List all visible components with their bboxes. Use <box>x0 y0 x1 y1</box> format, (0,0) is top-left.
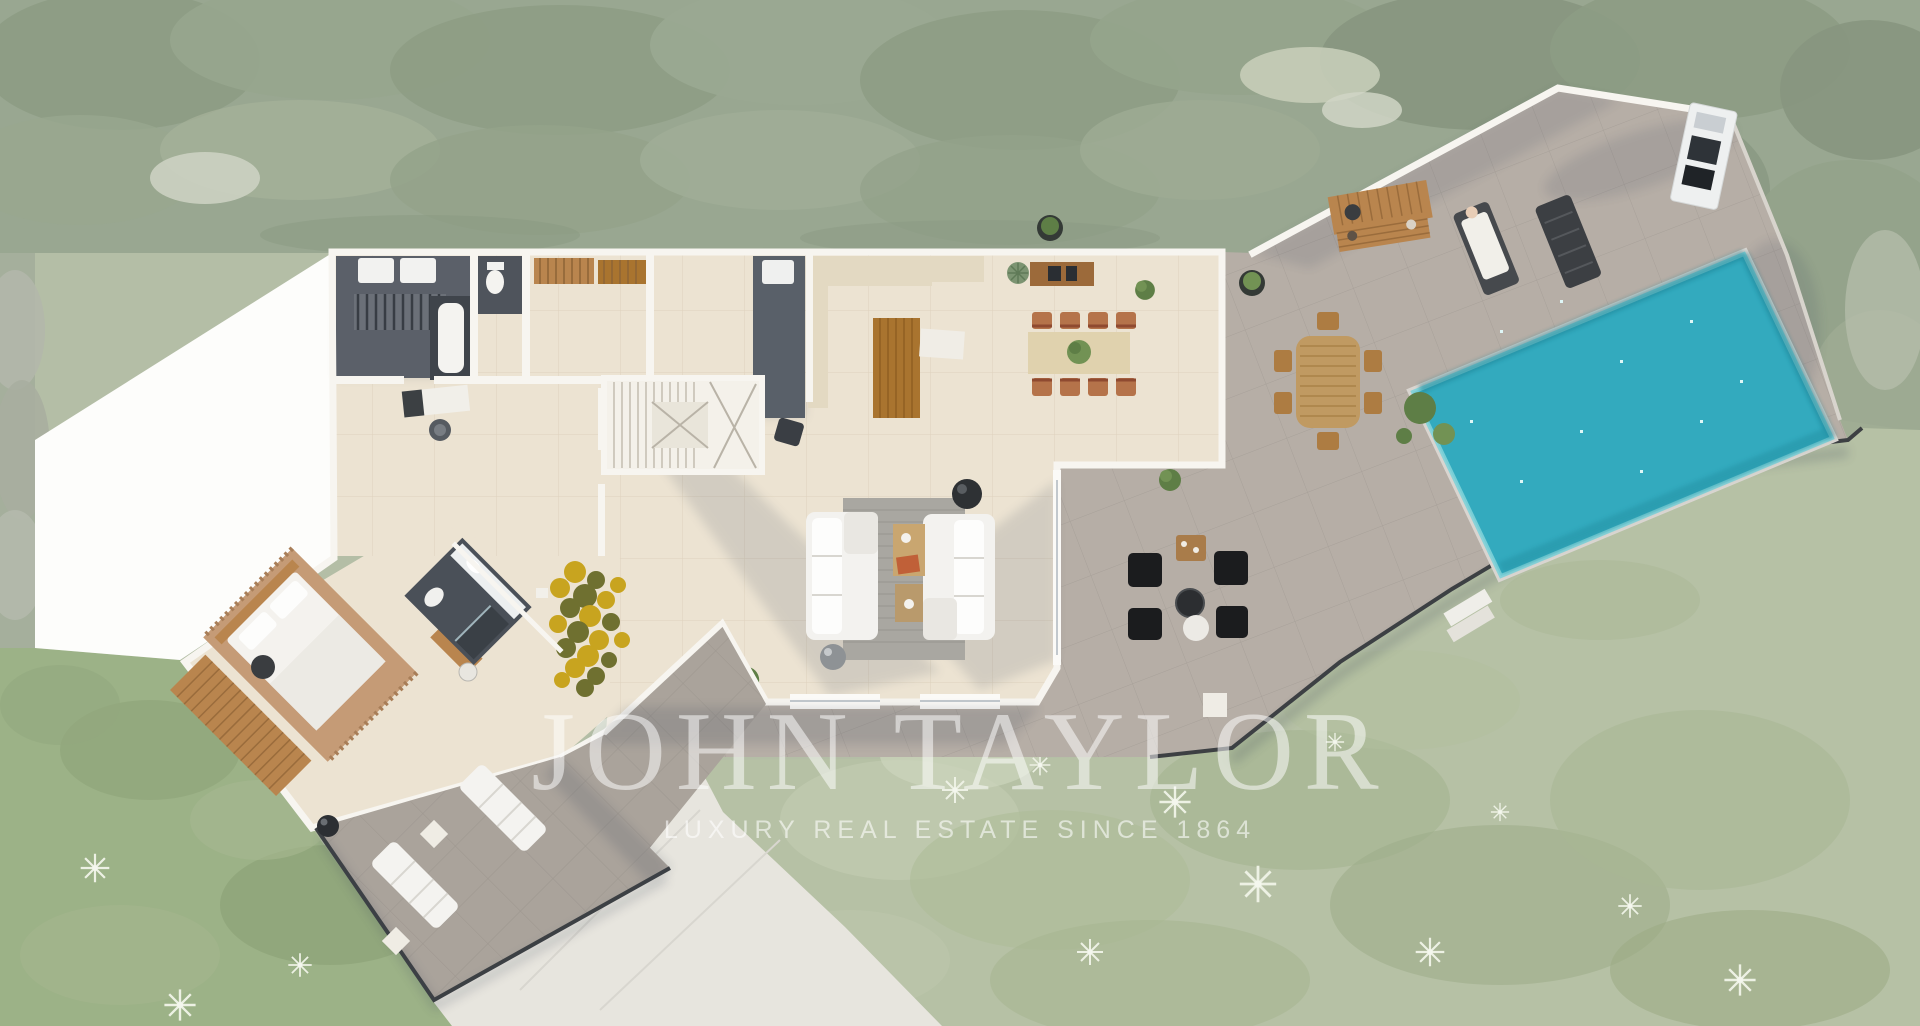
sofa-right <box>923 514 995 640</box>
bedroom-chair <box>459 663 477 681</box>
dining-chair <box>1317 312 1339 330</box>
wc-room <box>478 256 522 314</box>
utility-room <box>336 256 470 380</box>
coffee-tables <box>893 524 925 622</box>
aerial-floorplan-render: JOHN TAYLOR LUXURY REAL ESTATE SINCE 186… <box>0 0 1920 1026</box>
round-side-table-dark <box>1176 589 1204 617</box>
decor-sphere <box>820 644 846 670</box>
ball-lamp <box>317 815 339 837</box>
fire-bowl <box>952 479 982 509</box>
dryer <box>400 258 436 283</box>
toilet <box>486 270 504 294</box>
staircase <box>604 378 762 472</box>
bathtub <box>438 303 464 373</box>
villa-plan-svg <box>0 0 1920 1026</box>
washer <box>358 258 394 283</box>
bbq-console <box>1007 262 1094 286</box>
walkway-cube-table <box>1203 693 1227 717</box>
closet-room <box>534 258 646 284</box>
round-side-table-white <box>1183 615 1209 641</box>
fridge <box>762 260 794 284</box>
kitchen-counter-extension <box>919 328 965 359</box>
sofa-left <box>806 512 878 640</box>
deck-pot <box>251 655 275 679</box>
wood-tray-table <box>1176 535 1206 561</box>
